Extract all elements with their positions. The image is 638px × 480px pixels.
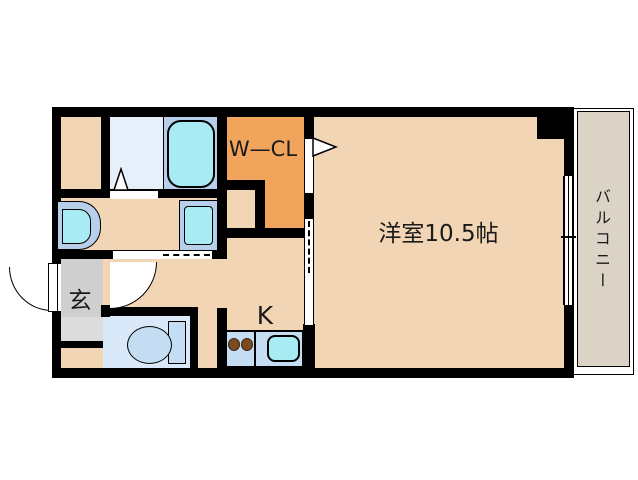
wall-wcl-bottom bbox=[217, 228, 313, 238]
sliding-door-dashes bbox=[308, 221, 310, 273]
vanity-sink-basin bbox=[62, 209, 91, 244]
bath-door-opening bbox=[110, 191, 158, 199]
kitchen-sink bbox=[267, 335, 300, 362]
wall-right-lower bbox=[564, 305, 574, 378]
wall-washroom-bottom-left bbox=[52, 250, 113, 259]
wall-washroom-bottom-right bbox=[212, 250, 227, 259]
balcony-label: バルコニー bbox=[586, 170, 610, 310]
wcl-label: W—CL bbox=[222, 138, 304, 161]
wcl-door-flag-icon bbox=[312, 136, 338, 159]
balcony-window-center-rail bbox=[568, 176, 569, 305]
bathtub bbox=[167, 120, 215, 188]
wall-pillar-topright bbox=[537, 107, 574, 139]
main-room-label: 洋室10.5帖 bbox=[313, 222, 564, 247]
wall-toilet-right bbox=[190, 316, 198, 368]
bath-door-triangle-icon bbox=[112, 167, 130, 192]
closet-region bbox=[61, 117, 101, 189]
kitchen-counter-divider bbox=[254, 332, 256, 366]
balcony-window bbox=[563, 176, 574, 305]
wall-strip-mid bbox=[304, 192, 314, 219]
entrance-floor-lower bbox=[57, 317, 103, 341]
entrance-label: 玄 bbox=[57, 289, 103, 314]
kitchen-label: K bbox=[226, 302, 304, 330]
washroom-door-opening bbox=[113, 250, 212, 259]
wall-kitchen-right bbox=[303, 324, 315, 368]
pipe-space-region bbox=[227, 190, 255, 228]
washroom-folding-door-dashes bbox=[163, 254, 210, 256]
wall-closet-bath-divider bbox=[101, 112, 110, 194]
entrance-door-arc bbox=[9, 267, 52, 311]
walk-in-closet-floor-leg bbox=[265, 112, 305, 230]
wall-entrance-step bbox=[57, 341, 103, 348]
wall-right-upper bbox=[564, 139, 574, 176]
floor-plan: W—CL 洋室10.5帖 バルコニー 玄 K bbox=[0, 0, 638, 480]
toilet-bowl bbox=[127, 326, 172, 364]
wall-bottom bbox=[52, 368, 574, 378]
stove-burner-right bbox=[241, 338, 253, 351]
washer-pan-inner bbox=[184, 206, 213, 245]
stove-burner-left bbox=[228, 338, 240, 351]
